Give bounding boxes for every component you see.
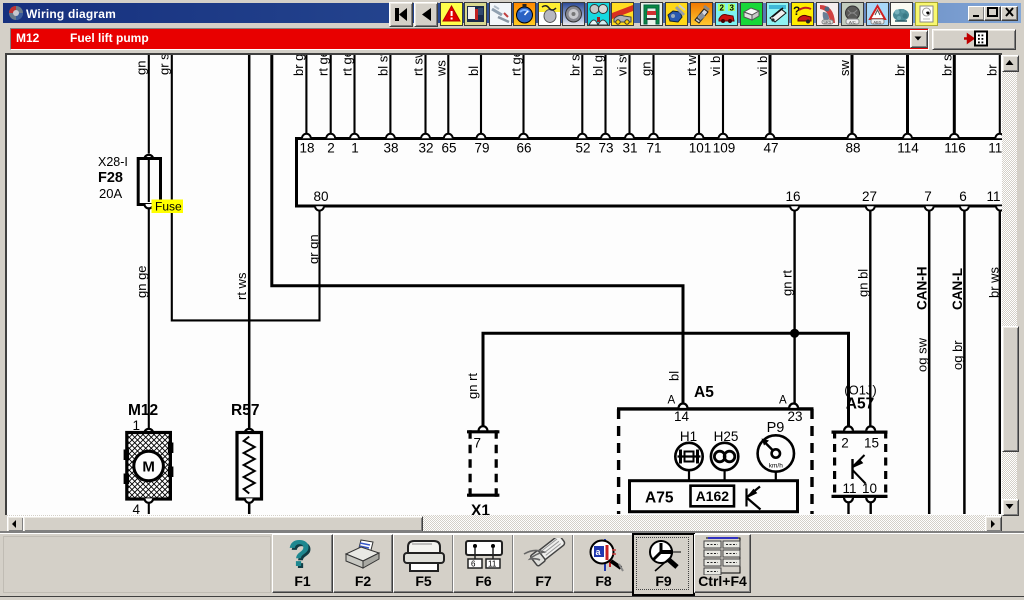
svg-text:br ge: br ge [291, 55, 306, 76]
svg-text:gr gn: gr gn [306, 234, 321, 264]
svg-text:vi bl: vi bl [708, 55, 723, 76]
svg-text:73: 73 [598, 141, 613, 156]
svg-text:br: br [893, 64, 908, 76]
svg-text:31: 31 [622, 141, 637, 156]
svg-text:F28: F28 [98, 170, 123, 186]
svg-text:rt ge: rt ge [316, 55, 331, 76]
svg-text:A5: A5 [694, 384, 714, 401]
svg-text:18: 18 [299, 141, 314, 156]
svg-text:gn bl: gn bl [855, 269, 870, 297]
svg-text:SRS: SRS [823, 20, 832, 25]
svg-text:A/C: A/C [849, 20, 856, 25]
svg-text:1: 1 [133, 418, 141, 433]
svg-text:38: 38 [383, 141, 398, 156]
svg-text:M: M [142, 459, 155, 476]
svg-text:M12: M12 [128, 402, 158, 419]
svg-text:CAN-L: CAN-L [950, 268, 965, 310]
svg-text:X1: X1 [471, 503, 490, 516]
svg-text:gn: gn [639, 62, 654, 76]
svg-text:km/h: km/h [769, 463, 783, 470]
svg-text:ws: ws [434, 60, 449, 77]
svg-text:65: 65 [441, 141, 456, 156]
svg-text:R57: R57 [231, 402, 259, 419]
svg-text:Fuse: Fuse [155, 200, 182, 214]
svg-text:rt ge: rt ge [509, 55, 524, 76]
svg-text:88: 88 [845, 141, 860, 156]
svg-text:119: 119 [988, 141, 1002, 156]
svg-text:23: 23 [787, 409, 802, 424]
svg-text:gn: gn [134, 61, 149, 75]
svg-text:bl: bl [667, 371, 682, 381]
svg-text:A: A [668, 395, 676, 407]
svg-text:bl sw: bl sw [376, 55, 391, 76]
svg-text:X28-I: X28-I [98, 155, 128, 169]
svg-text:71: 71 [646, 141, 661, 156]
svg-text:A: A [779, 395, 787, 407]
svg-text:114: 114 [897, 141, 919, 156]
svg-text:20A: 20A [99, 186, 122, 201]
svg-text:rt ge: rt ge [340, 55, 355, 76]
svg-text:14: 14 [674, 409, 690, 424]
svg-text:gn rt: gn rt [780, 270, 795, 296]
svg-text:?: ? [793, 4, 800, 18]
svg-text:2: 2 [841, 436, 849, 451]
svg-text:11: 11 [986, 189, 1000, 204]
svg-text:7: 7 [924, 189, 932, 204]
svg-text:rt sw: rt sw [411, 55, 426, 76]
svg-text:3: 3 [730, 4, 735, 13]
svg-text:11: 11 [488, 560, 497, 569]
svg-text:47: 47 [763, 141, 778, 156]
svg-text:27: 27 [862, 189, 877, 204]
svg-text:A75: A75 [645, 490, 674, 507]
svg-text:7: 7 [474, 436, 482, 451]
svg-text:116: 116 [944, 141, 966, 156]
svg-text:br sw: br sw [568, 55, 583, 76]
svg-text:11: 11 [842, 481, 856, 496]
svg-text:109: 109 [713, 141, 736, 156]
svg-text:1: 1 [351, 141, 359, 156]
svg-text:rt ws: rt ws [234, 272, 249, 300]
svg-text:rt ws: rt ws [684, 55, 699, 76]
svg-text:4: 4 [133, 502, 141, 515]
svg-text:66: 66 [516, 141, 531, 156]
svg-text:og br: og br [950, 340, 965, 370]
svg-text:bl: bl [466, 66, 481, 76]
svg-text:A162: A162 [696, 488, 730, 504]
svg-text:CAN-H: CAN-H [915, 267, 930, 311]
svg-text:16: 16 [785, 189, 800, 204]
svg-text:br: br [985, 64, 1000, 76]
svg-text:og sw: og sw [915, 337, 930, 372]
svg-text:br ws: br ws [987, 266, 1002, 298]
svg-text:vi sw: vi sw [615, 55, 630, 76]
svg-text:6: 6 [959, 189, 967, 204]
svg-text:80: 80 [313, 189, 328, 204]
svg-text:br sw: br sw [940, 55, 955, 76]
svg-text:gn ge: gn ge [134, 265, 149, 298]
svg-text:vi br: vi br [755, 55, 770, 76]
svg-text:79: 79 [474, 141, 489, 156]
svg-text:bl ge: bl ge [591, 55, 606, 76]
svg-text:10: 10 [862, 481, 877, 496]
svg-text:ABS: ABS [873, 20, 881, 25]
svg-text:gn rt: gn rt [465, 373, 480, 399]
svg-text:15: 15 [864, 436, 879, 451]
svg-text:gr sw: gr sw [157, 55, 172, 75]
svg-text:101: 101 [689, 141, 712, 156]
svg-text:2: 2 [720, 4, 725, 13]
svg-text:32: 32 [418, 141, 433, 156]
svg-text:P9: P9 [767, 420, 785, 436]
svg-text:6: 6 [471, 560, 476, 569]
svg-text:A57: A57 [846, 396, 874, 413]
svg-text:sw: sw [837, 60, 852, 77]
svg-text:2: 2 [327, 141, 335, 156]
svg-text:52: 52 [575, 141, 590, 156]
